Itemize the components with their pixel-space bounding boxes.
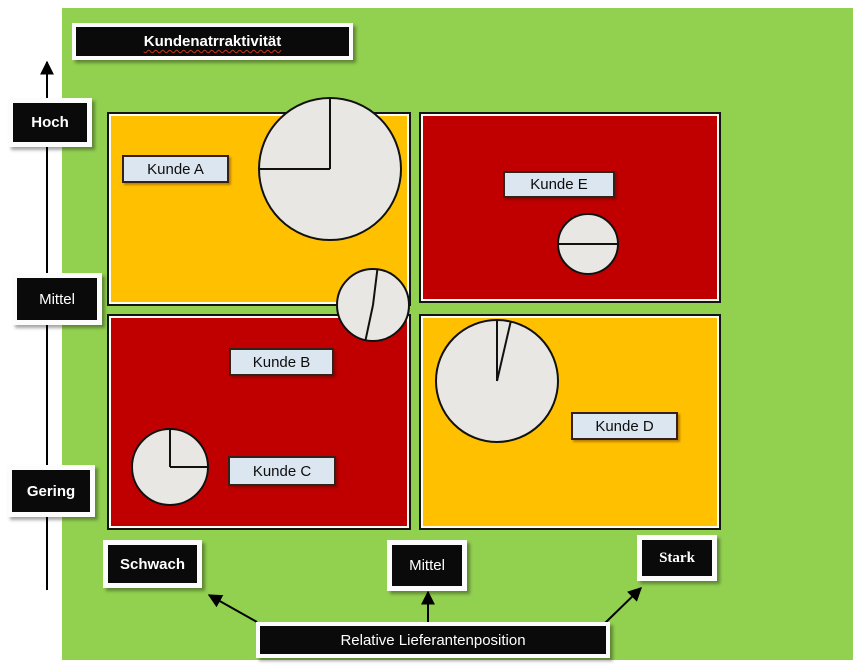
x-tick-mittel: Mittel: [387, 540, 467, 591]
kunde-b-label: Kunde B: [229, 348, 334, 376]
y-tick-mittel: Mittel: [12, 273, 102, 325]
kunde-e-label: Kunde E: [503, 171, 615, 198]
quadrant-top-right: [419, 112, 721, 303]
kunde-c-label: Kunde C: [228, 456, 336, 486]
kunde-d-label: Kunde D: [571, 412, 678, 440]
x-tick-schwach: Schwach: [103, 540, 202, 588]
portfolio-matrix-diagram: Kunde A Kunde E Kunde B Kunde C Kunde D …: [0, 0, 855, 665]
y-tick-hoch: Hoch: [8, 98, 92, 147]
x-axis-title: Relative Lieferantenposition: [340, 632, 525, 649]
chart-title-box: Kundenatrraktivität: [72, 23, 353, 60]
x-tick-stark: Stark: [637, 535, 717, 581]
y-tick-gering: Gering: [7, 465, 95, 517]
quadrant-top-left: [107, 112, 411, 306]
quadrant-bottom-left: [107, 314, 411, 530]
kunde-a-label: Kunde A: [122, 155, 229, 183]
chart-title: Kundenatrraktivität: [144, 33, 282, 50]
x-axis-title-box: Relative Lieferantenposition: [256, 622, 610, 658]
